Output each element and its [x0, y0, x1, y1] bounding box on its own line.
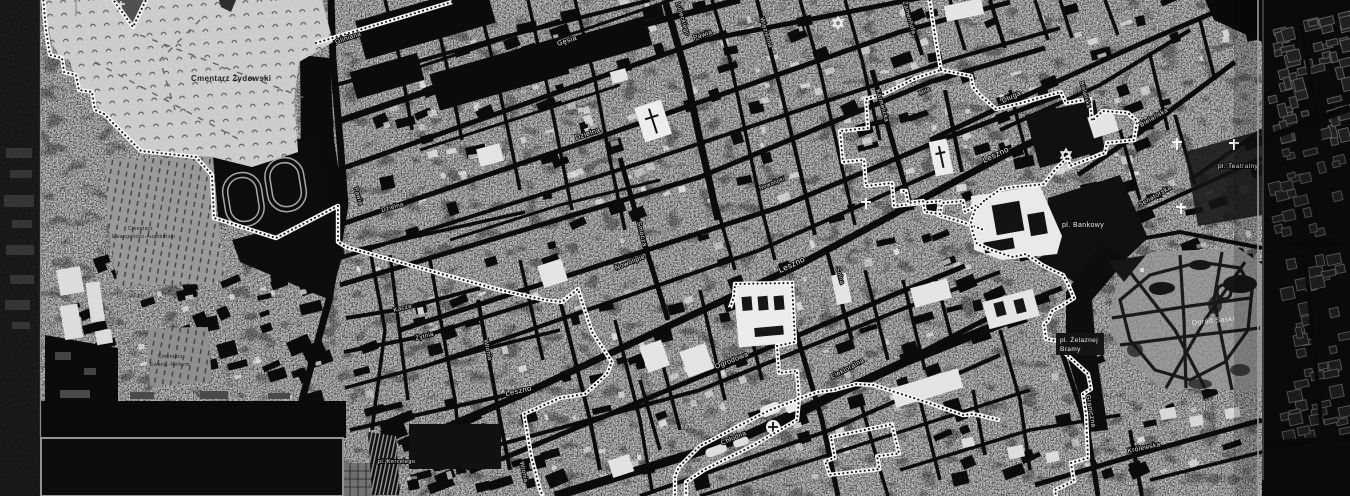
svg-text:Ewang.-Reform.: Ewang.-Reform. [150, 362, 192, 368]
svg-text:Cmentarz Żydowski: Cmentarz Żydowski [191, 74, 271, 83]
svg-text:Cmentarz: Cmentarz [128, 226, 153, 232]
svg-text:pl. Kercelego: pl. Kercelego [378, 459, 415, 465]
svg-text:Bramy: Bramy [1060, 346, 1081, 353]
svg-text:Ewangelicko-Augsburski: Ewangelicko-Augsburski [112, 234, 175, 240]
svg-text:Cmentarz: Cmentarz [158, 354, 183, 360]
svg-text:pl. Żelaznej: pl. Żelaznej [1060, 335, 1098, 344]
svg-text:pl. Bankowy: pl. Bankowy [1062, 222, 1104, 229]
